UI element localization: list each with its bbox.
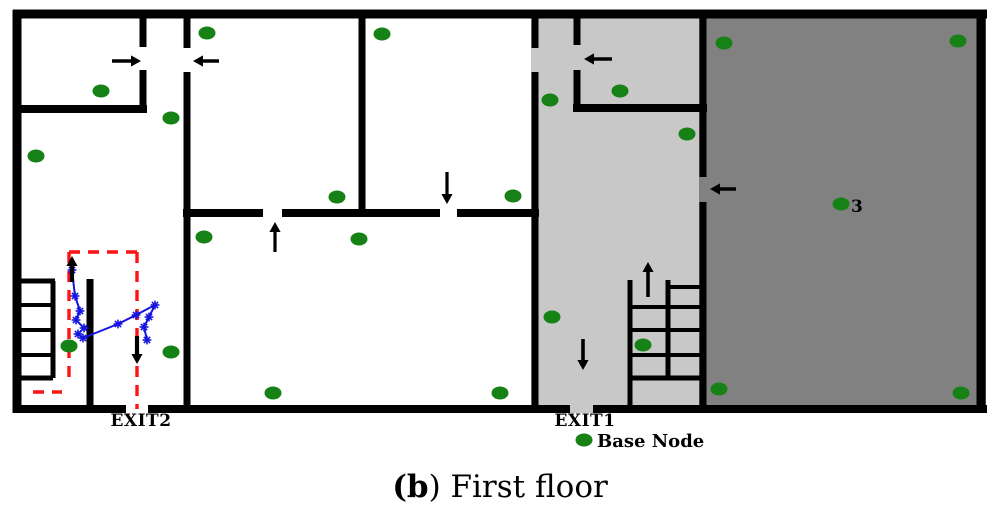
trajectory-path — [68, 266, 160, 345]
first-floor-plan: EXIT2 EXIT1 3 Base Node (b) First floor — [0, 0, 1000, 515]
base-node — [351, 233, 368, 246]
base-node — [196, 231, 213, 244]
exit1-label: EXIT1 — [554, 411, 615, 431]
base-node — [612, 85, 629, 98]
base-node — [199, 27, 216, 40]
base-node — [93, 85, 110, 98]
caption-letter: b — [407, 469, 429, 505]
door-direction-arrow-head — [441, 194, 452, 204]
base-node — [542, 94, 559, 107]
door-direction-arrow-head — [269, 222, 280, 232]
door-direction-arrow-head — [131, 55, 141, 66]
floor-plan-figure: EXIT2 EXIT1 3 Base Node (b) First floor — [0, 0, 1000, 515]
base-node — [61, 340, 78, 353]
base-node — [953, 387, 970, 400]
base-node — [716, 37, 733, 50]
base-node — [28, 150, 45, 163]
figure-caption: (b) First floor — [392, 469, 608, 505]
caption-paren-open: ( — [392, 469, 407, 505]
door-direction-arrow-head — [131, 354, 142, 364]
light-gray-room — [531, 10, 707, 413]
node-number-label: 3 — [851, 197, 863, 217]
base-node — [833, 198, 850, 211]
base-node — [163, 112, 180, 125]
base-node — [492, 387, 509, 400]
base-node — [635, 339, 652, 352]
room-regions — [531, 10, 986, 413]
legend-label: Base Node — [597, 431, 704, 452]
door-direction-arrow-head — [193, 55, 203, 66]
base-node — [265, 387, 282, 400]
caption-text: ) First floor — [429, 469, 608, 505]
exit2-label: EXIT2 — [110, 411, 171, 431]
base-node — [711, 383, 728, 396]
base-node — [950, 35, 967, 48]
base-node — [163, 346, 180, 359]
base-node — [544, 311, 561, 324]
base-node — [679, 128, 696, 141]
dark-gray-room — [699, 10, 986, 413]
legend-base-node-icon — [576, 434, 593, 447]
base-node — [329, 191, 346, 204]
base-node — [505, 190, 522, 203]
base-node — [374, 28, 391, 41]
